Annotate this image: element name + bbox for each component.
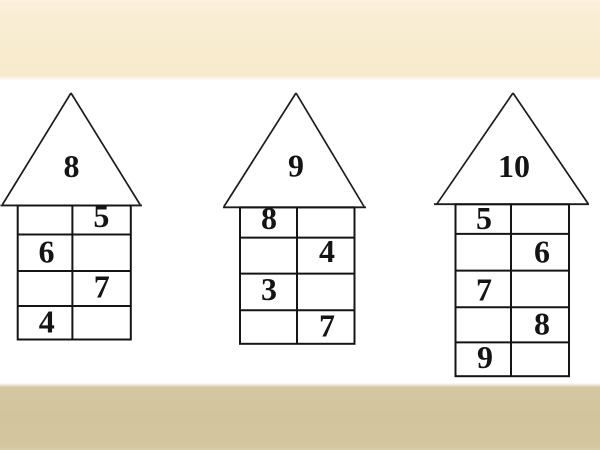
svg-text:4: 4	[319, 233, 335, 269]
svg-text:6: 6	[39, 234, 55, 270]
svg-text:7: 7	[476, 272, 492, 308]
svg-text:6: 6	[534, 234, 550, 270]
svg-text:5: 5	[93, 198, 109, 234]
svg-text:8: 8	[261, 200, 277, 236]
svg-text:7: 7	[94, 269, 110, 305]
svg-text:9: 9	[288, 147, 304, 183]
svg-text:7: 7	[319, 307, 335, 343]
svg-text:5: 5	[476, 200, 492, 236]
svg-text:8: 8	[64, 148, 80, 184]
svg-text:10: 10	[498, 148, 530, 184]
svg-text:8: 8	[534, 305, 550, 341]
svg-text:9: 9	[477, 339, 493, 375]
svg-text:3: 3	[261, 271, 277, 307]
svg-text:4: 4	[39, 304, 55, 340]
